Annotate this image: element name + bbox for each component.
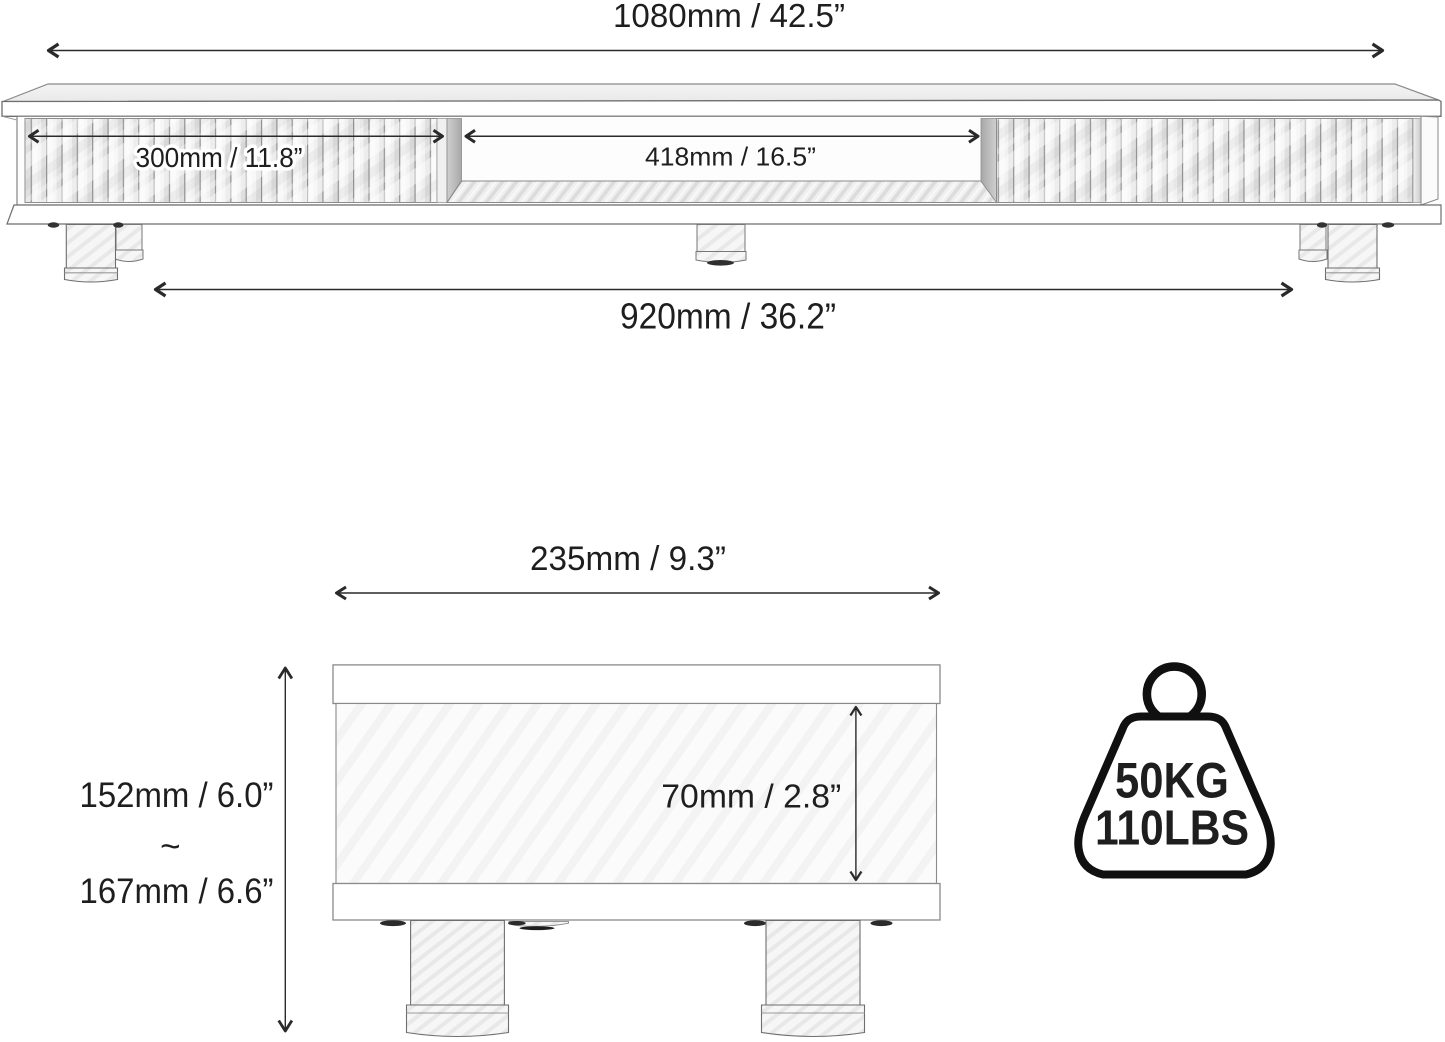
svg-text:167mm / 6.6”: 167mm / 6.6” xyxy=(80,872,274,911)
svg-text:152mm / 6.0”: 152mm / 6.0” xyxy=(80,776,274,815)
svg-text:~: ~ xyxy=(160,827,180,866)
svg-text:50KG: 50KG xyxy=(1115,753,1229,809)
svg-text:300mm / 11.8”: 300mm / 11.8” xyxy=(136,142,303,173)
svg-text:1080mm / 42.5”: 1080mm / 42.5” xyxy=(613,0,845,34)
svg-text:70mm / 2.8”: 70mm / 2.8” xyxy=(661,778,841,815)
svg-text:110LBS: 110LBS xyxy=(1095,802,1249,856)
svg-text:920mm / 36.2”: 920mm / 36.2” xyxy=(620,296,836,337)
svg-text:418mm / 16.5”: 418mm / 16.5” xyxy=(645,142,816,172)
svg-text:235mm / 9.3”: 235mm / 9.3” xyxy=(530,540,726,578)
